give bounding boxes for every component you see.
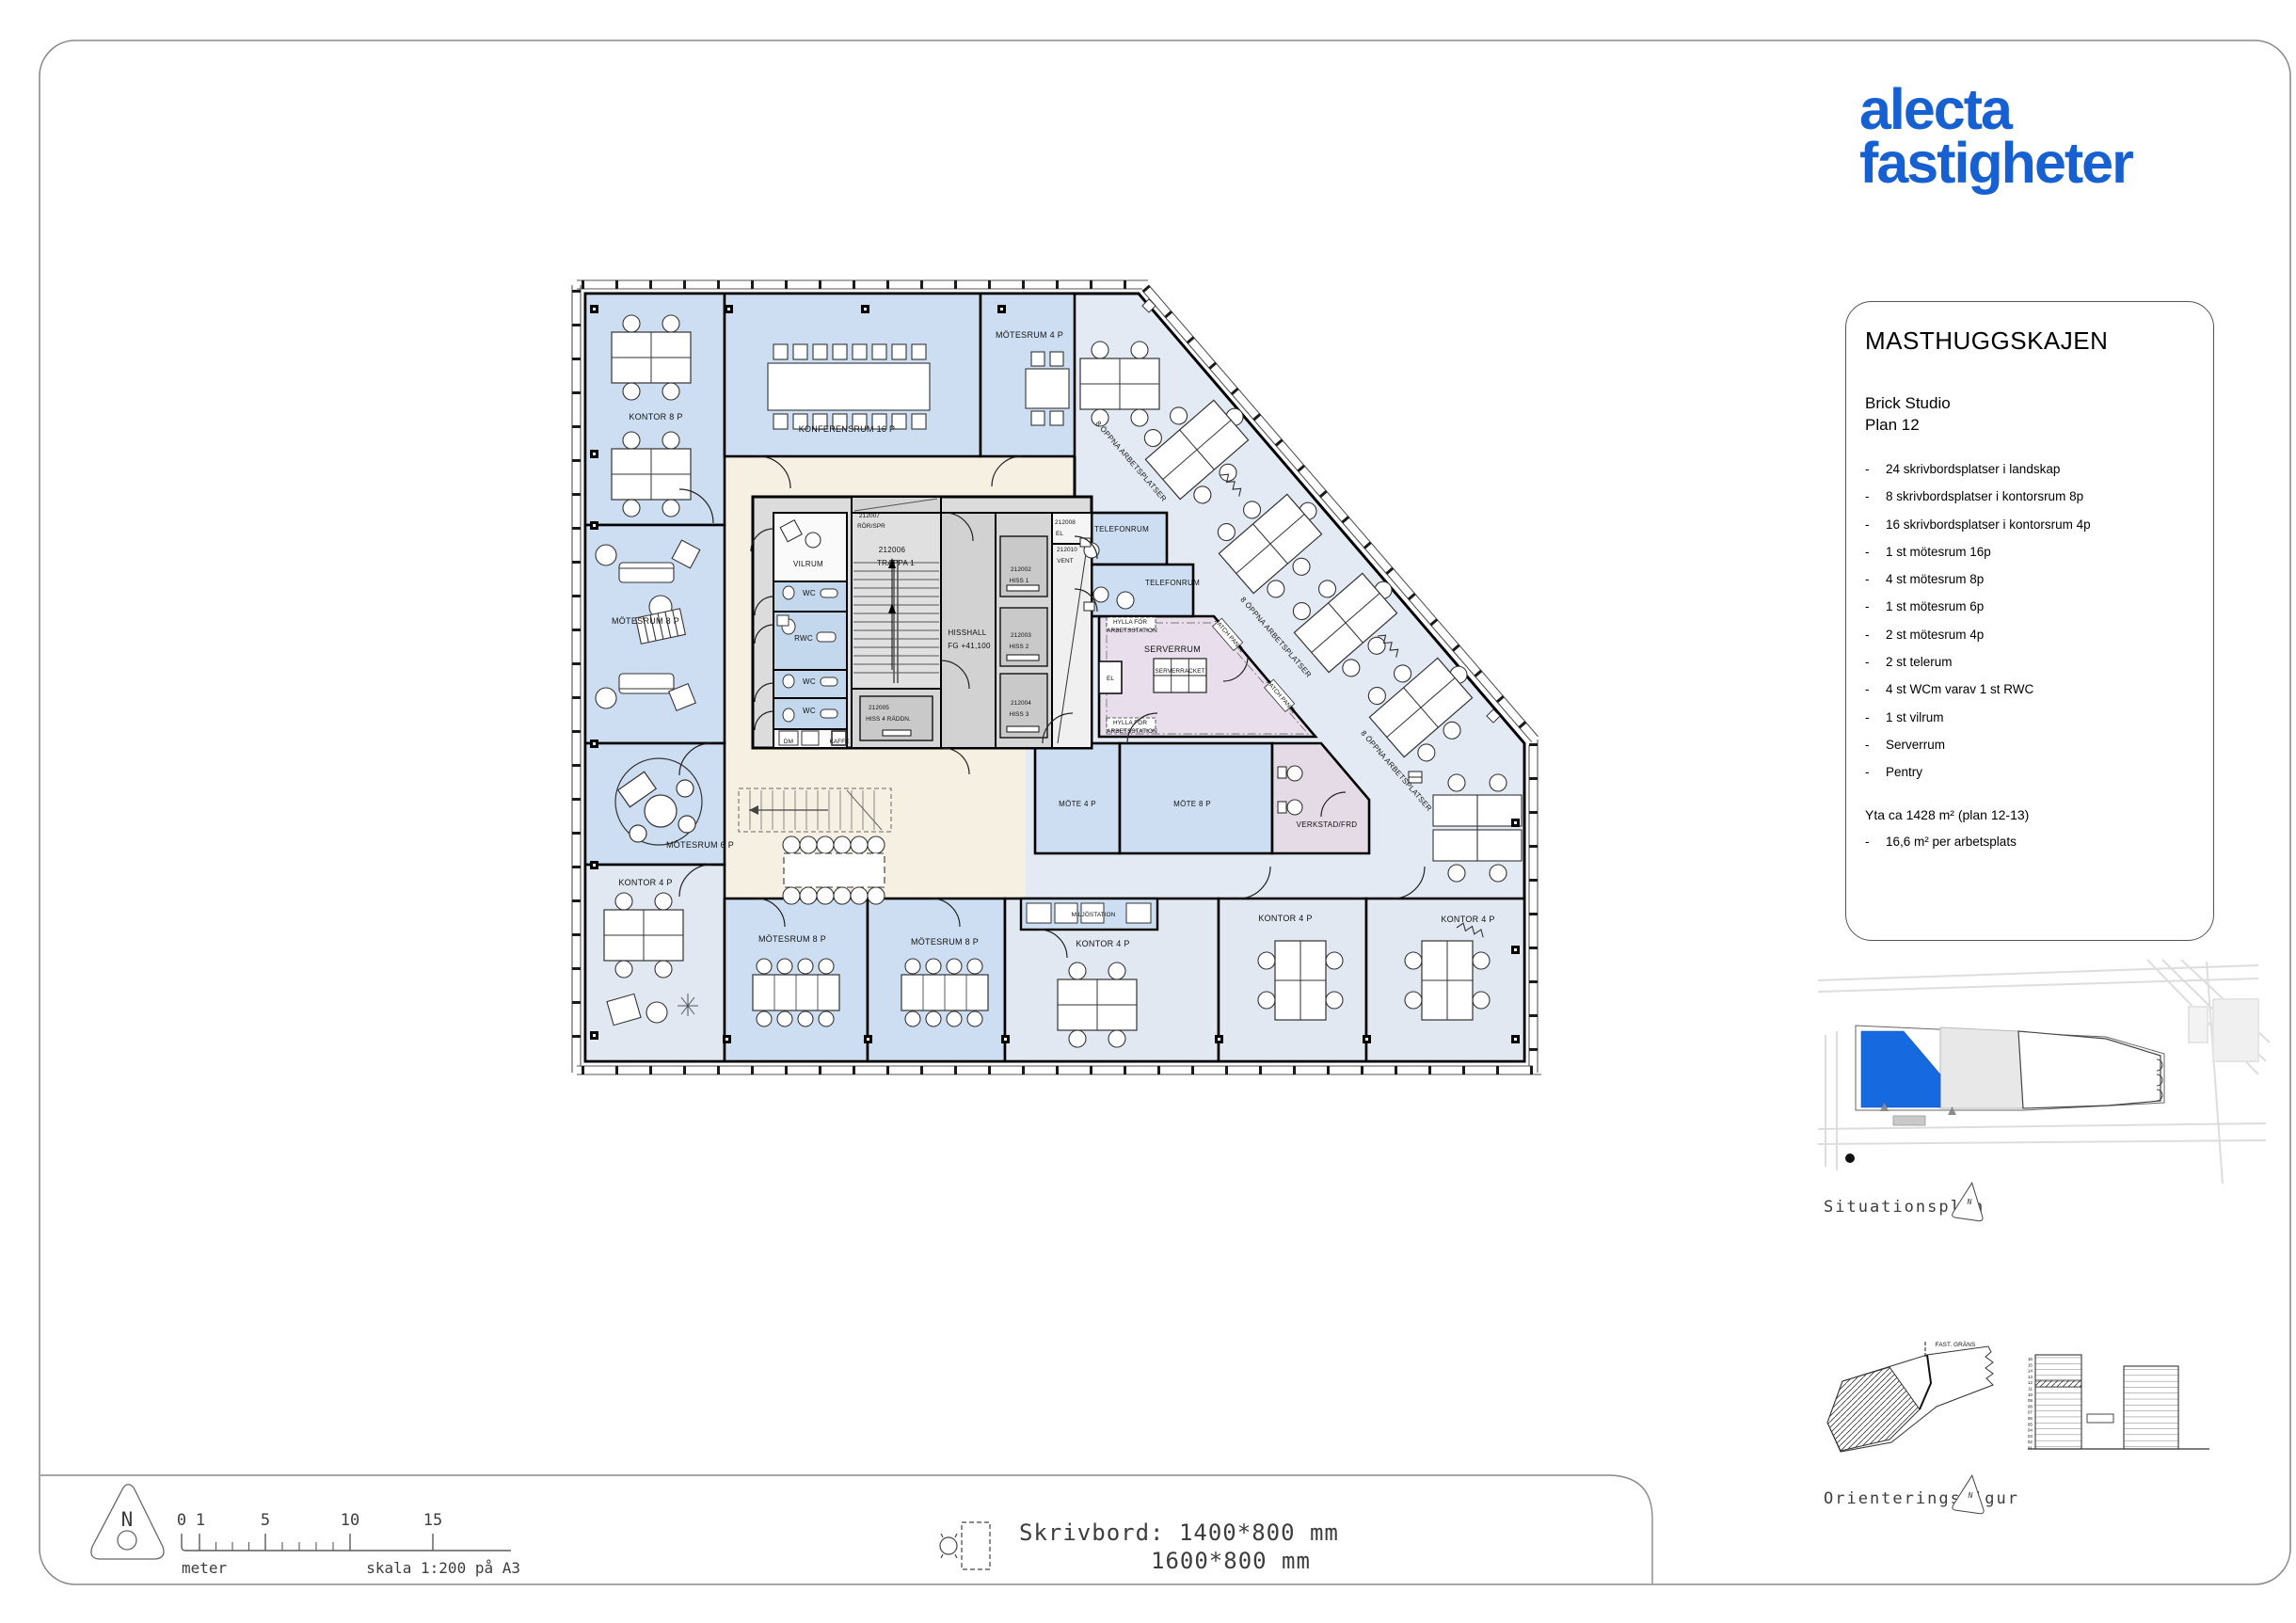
- room-label: 212003: [1011, 632, 1031, 639]
- room-label: MÖTESRUM 4 P: [996, 330, 1063, 340]
- list-item: -Serverrum: [1865, 731, 2196, 758]
- room-label: TELEFONRUM: [1145, 579, 1200, 587]
- section-highlight-floor: [2035, 1380, 2081, 1387]
- room-label: KONTOR 8 P: [629, 412, 682, 422]
- room-label: ARBETSSTATION: [1107, 628, 1157, 634]
- floor-plan: KONTOR 8 P KONFERENSRUM 16 P MÖTESRUM 4 …: [572, 280, 1541, 1074]
- room-label: VERKSTAD/FRD: [1297, 820, 1358, 829]
- north-letter: N: [121, 1508, 134, 1531]
- svg-text:12: 12: [2028, 1380, 2033, 1385]
- room-label: MÖTE 4 P: [1059, 800, 1096, 808]
- company-logo: alecta fastigheter: [1859, 83, 2132, 189]
- room-label: KAFFE: [829, 739, 849, 745]
- svg-text:N: N: [1967, 1198, 1972, 1206]
- room-label: 212008: [1055, 519, 1076, 526]
- room-label: HISS 4 RÄDDN.: [866, 715, 911, 723]
- situationsplan-dot: [1845, 1154, 1855, 1163]
- room-mote-8p: [1120, 743, 1272, 853]
- orienteringsfigur-figure: FAST. GRÄNS 16 15 14 13 12 11 10 09 08 0…: [1824, 1341, 2209, 1514]
- room-label: HISS 1: [1010, 578, 1029, 584]
- list-item: -4 st mötesrum 8p: [1865, 565, 2196, 593]
- svg-text:03: 03: [2028, 1434, 2033, 1439]
- room-label: 212007: [859, 513, 880, 519]
- svg-text:02: 02: [2028, 1440, 2033, 1444]
- room-label: HISSHALL: [948, 629, 986, 637]
- svg-text:16: 16: [2028, 1357, 2033, 1361]
- area-sub-line: -16,6 m² per arbetsplats: [1865, 828, 2196, 855]
- list-item: -Pentry: [1865, 758, 2196, 786]
- scale-numbers: 0 1 5 10 15: [177, 1511, 442, 1530]
- room-label: TRAPPA 1: [877, 559, 915, 567]
- logo-line2: fastigheter: [1859, 136, 2132, 190]
- list-item: -2 st telerum: [1865, 648, 2196, 676]
- room-label: MILJÖSTATION: [1072, 911, 1116, 918]
- room-label: VILRUM: [793, 560, 823, 568]
- room-kontor-4p-left: [585, 865, 725, 1061]
- room-label: 212005: [869, 705, 889, 711]
- program-list: -24 skrivbordsplatser i landskap -8 skri…: [1865, 455, 2196, 787]
- room-label: 212010: [1057, 547, 1077, 553]
- meter-label: meter: [182, 1559, 228, 1577]
- orienteringsfigur-label: Orienteringsfigur: [1824, 1489, 2019, 1508]
- svg-text:01: 01: [2028, 1446, 2033, 1451]
- plan-number: Plan 12: [1865, 414, 2196, 436]
- svg-text:07: 07: [2028, 1410, 2033, 1415]
- logo-line1: alecta: [1859, 83, 2132, 136]
- room-label: 212006: [879, 546, 906, 554]
- room-label: VENT: [1057, 558, 1073, 565]
- room-label: HISS 2: [1010, 644, 1029, 650]
- svg-text:1: 1: [196, 1511, 205, 1530]
- svg-text:0: 0: [177, 1511, 186, 1530]
- list-item: -8 skrivbordsplatser i kontorsrum 8p: [1865, 483, 2196, 510]
- room-label: WC: [803, 677, 816, 686]
- desk-legend-line1: Skrivbord: 1400*800 mm: [1019, 1520, 1339, 1546]
- room-label: MÖTE 8 P: [1173, 800, 1211, 808]
- svg-text:14: 14: [2028, 1369, 2033, 1374]
- svg-text:04: 04: [2028, 1428, 2033, 1433]
- list-item: -1 st mötesrum 6p: [1865, 593, 2196, 620]
- room-label: HYLLA FÖR: [1113, 618, 1147, 626]
- room-label: KONFERENSRUM 16 P: [799, 424, 896, 434]
- room-label: FG +41,100: [948, 642, 991, 650]
- room-label: WC: [803, 707, 816, 715]
- desk-legend-line2: 1600*800 mm: [1151, 1548, 1311, 1574]
- room-label: 212002: [1011, 566, 1031, 573]
- room-label: KONTOR 4 P: [618, 878, 672, 887]
- desk-legend-icon: [940, 1522, 990, 1569]
- room-trappa: [852, 513, 941, 689]
- room-label: ARBETSSTATION: [1107, 728, 1157, 735]
- svg-text:N: N: [1968, 1491, 1973, 1500]
- svg-text:11: 11: [2028, 1387, 2033, 1392]
- room-label: EL: [1056, 531, 1063, 537]
- room-label: MÖTESRUM 8 P: [612, 616, 679, 626]
- project-subtitle: Brick Studio: [1865, 392, 2196, 414]
- room-label: KONTOR 4 P: [1076, 939, 1129, 948]
- room-label: 212004: [1011, 700, 1031, 707]
- room-label: HYLLA FÖR: [1113, 719, 1147, 726]
- svg-text:05: 05: [2028, 1422, 2033, 1426]
- svg-text:13: 13: [2028, 1375, 2033, 1379]
- room-label: MÖTESRUM 6 P: [666, 840, 734, 850]
- room-label: SERVERRUM: [1144, 644, 1201, 654]
- room-label: TELEFONRUM: [1094, 525, 1149, 533]
- room-label: RÖR/SPR: [857, 522, 885, 530]
- svg-text:10: 10: [341, 1511, 359, 1530]
- list-item: -1 st mötesrum 16p: [1865, 538, 2196, 565]
- room-label: MÖTESRUM 8 P: [758, 934, 826, 944]
- list-item: -2 st mötesrum 4p: [1865, 621, 2196, 648]
- area-line: Yta ca 1428 m² (plan 12-13): [1865, 807, 2196, 822]
- room-label: HISS 3: [1010, 711, 1029, 718]
- drawing-sheet: KONTOR 8 P KONFERENSRUM 16 P MÖTESRUM 4 …: [0, 0, 2296, 1623]
- room-label: EL: [1107, 676, 1114, 682]
- list-item: -24 skrivbordsplatser i landskap: [1865, 455, 2196, 483]
- title-strip: N 0 1 5 10 15 meter skala 1:200 på A3: [91, 1485, 1339, 1577]
- svg-text:08: 08: [2028, 1404, 2033, 1408]
- north-arrow: N: [91, 1485, 164, 1559]
- room-label: RWC: [794, 634, 813, 643]
- room-label: KONTOR 4 P: [1258, 914, 1312, 923]
- list-item: -16 skrivbordsplatser i kontorsrum 4p: [1865, 511, 2196, 538]
- situationsplan-figure: Situationsplan N: [1818, 960, 2270, 1221]
- list-item: -4 st WCm varav 1 st RWC: [1865, 676, 2196, 703]
- room-label: WC: [803, 589, 816, 597]
- svg-text:06: 06: [2028, 1416, 2033, 1421]
- svg-text:5: 5: [261, 1511, 270, 1530]
- svg-text:15: 15: [423, 1511, 442, 1530]
- fast-grans-label: FAST. GRÄNS: [1936, 1341, 1976, 1348]
- floor-numbers: 16 15 14 13 12 11 10 09 08 07 06 05 04 0…: [2028, 1357, 2033, 1451]
- situationsplan-highlight: [1861, 1031, 1940, 1107]
- room-label: MÖTESRUM 8 P: [911, 937, 979, 947]
- svg-text:10: 10: [2028, 1392, 2033, 1397]
- room-mote-4p: [1035, 743, 1120, 853]
- room-label: DM: [784, 739, 793, 745]
- room-label: KONTOR 4 P: [1441, 915, 1494, 924]
- info-panel: MASTHUGGSKAJEN Brick Studio Plan 12 -24 …: [1845, 301, 2214, 941]
- scale-bar: [182, 1534, 511, 1551]
- svg-text:15: 15: [2028, 1362, 2033, 1367]
- list-item: -1 st vilrum: [1865, 704, 2196, 731]
- room-label: SERVERRACKET: [1155, 668, 1204, 675]
- project-title: MASTHUGGSKAJEN: [1865, 326, 2196, 356]
- pentry-table: [783, 836, 885, 904]
- svg-text:09: 09: [2028, 1398, 2033, 1403]
- scale-label: skala 1:200 på A3: [366, 1559, 520, 1577]
- building-section: 16 15 14 13 12 11 10 09 08 07 06 05 04 0…: [2028, 1355, 2209, 1451]
